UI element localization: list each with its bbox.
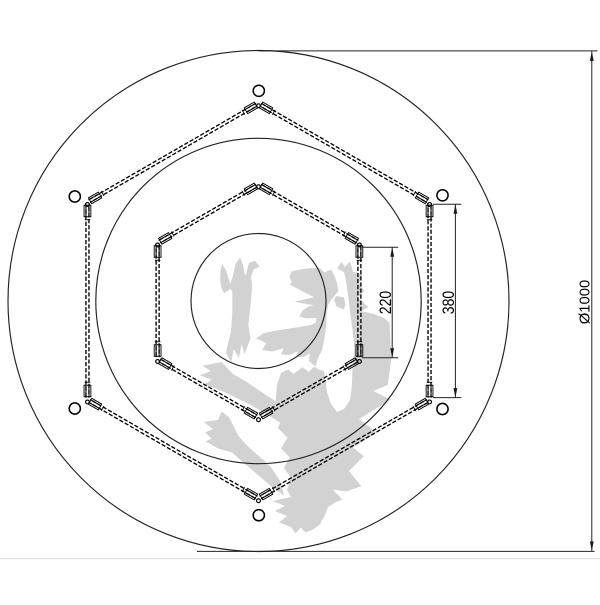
svg-text:380: 380 <box>440 291 458 315</box>
svg-text:220: 220 <box>377 291 395 315</box>
svg-text:Ø1000: Ø1000 <box>576 280 593 325</box>
